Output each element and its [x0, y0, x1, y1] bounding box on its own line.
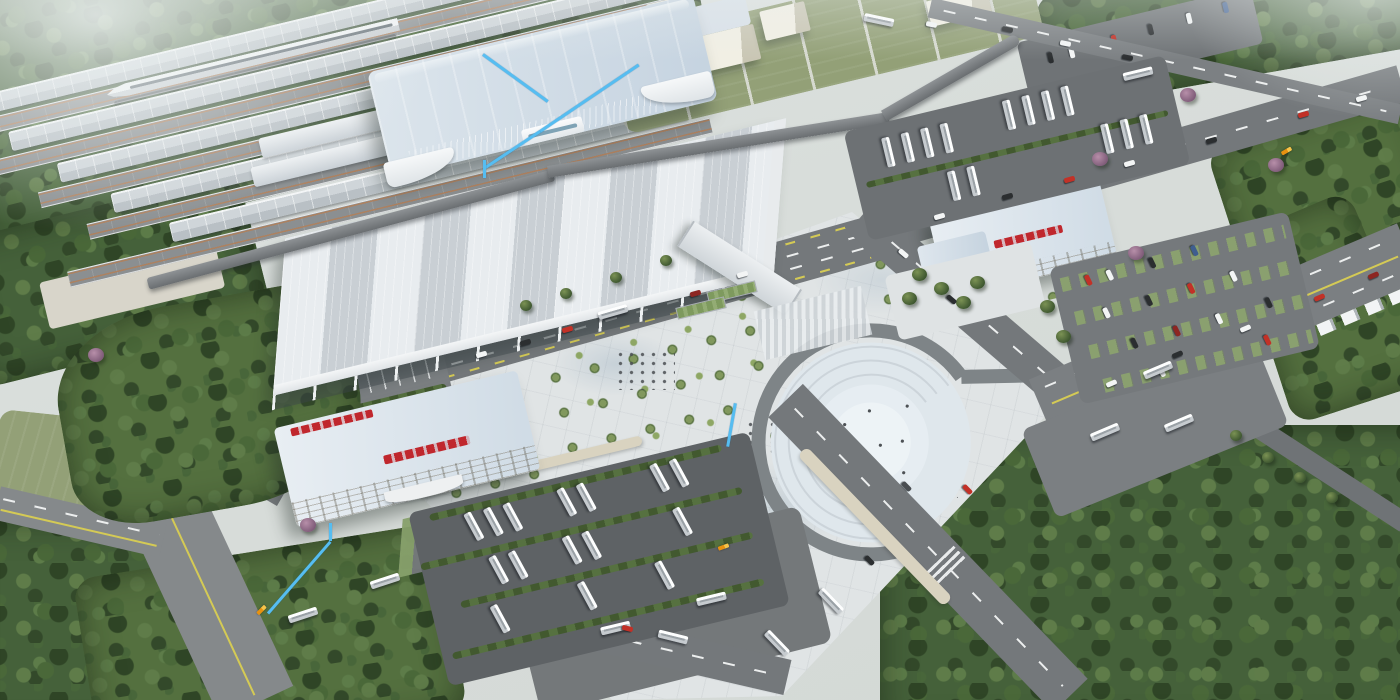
tree	[1230, 430, 1242, 441]
bus	[920, 127, 935, 158]
aerial-rendering-railway-station	[0, 0, 1400, 700]
bus	[561, 535, 582, 565]
bus	[900, 132, 915, 163]
bus	[508, 550, 529, 580]
annotation-tick	[483, 160, 486, 178]
pedestrians	[615, 350, 675, 390]
bus	[668, 458, 689, 488]
tree	[1040, 300, 1055, 313]
car	[1047, 52, 1054, 64]
tree	[610, 272, 622, 283]
rooftop-sign	[383, 435, 471, 464]
bus	[490, 604, 511, 634]
tree	[1326, 492, 1338, 503]
car	[1147, 24, 1154, 36]
bus	[649, 462, 670, 492]
bus	[556, 487, 577, 517]
bus	[1002, 99, 1017, 130]
flowering-tree	[300, 518, 316, 532]
bus	[939, 123, 954, 154]
bus	[463, 511, 484, 541]
car	[1185, 12, 1192, 24]
bus	[576, 482, 597, 512]
flowering-tree	[1092, 152, 1108, 166]
flowering-tree	[88, 348, 104, 362]
flowering-tree	[1268, 158, 1284, 172]
bus	[577, 581, 598, 611]
tree	[660, 255, 672, 266]
tree	[520, 300, 532, 311]
bus	[672, 506, 693, 536]
bus	[881, 137, 896, 168]
bus	[1021, 95, 1036, 126]
bus	[488, 555, 509, 585]
bus	[1122, 66, 1153, 81]
bus	[581, 530, 602, 560]
bus	[1041, 90, 1056, 121]
bus	[1060, 85, 1075, 116]
flowering-tree	[1128, 246, 1144, 260]
tree	[970, 276, 985, 289]
car	[1222, 2, 1229, 14]
tree	[1056, 330, 1071, 343]
tree	[1262, 452, 1274, 463]
tree	[560, 288, 572, 299]
bus	[483, 507, 504, 537]
flowering-tree	[1180, 88, 1196, 102]
bus	[654, 560, 675, 590]
bus	[966, 166, 981, 197]
tree	[1294, 472, 1306, 483]
tree	[902, 292, 917, 305]
tree	[956, 296, 971, 309]
annotation-tick	[329, 523, 332, 541]
tree	[934, 282, 949, 295]
bus	[947, 170, 962, 201]
bus	[502, 502, 523, 532]
tree	[912, 268, 927, 281]
